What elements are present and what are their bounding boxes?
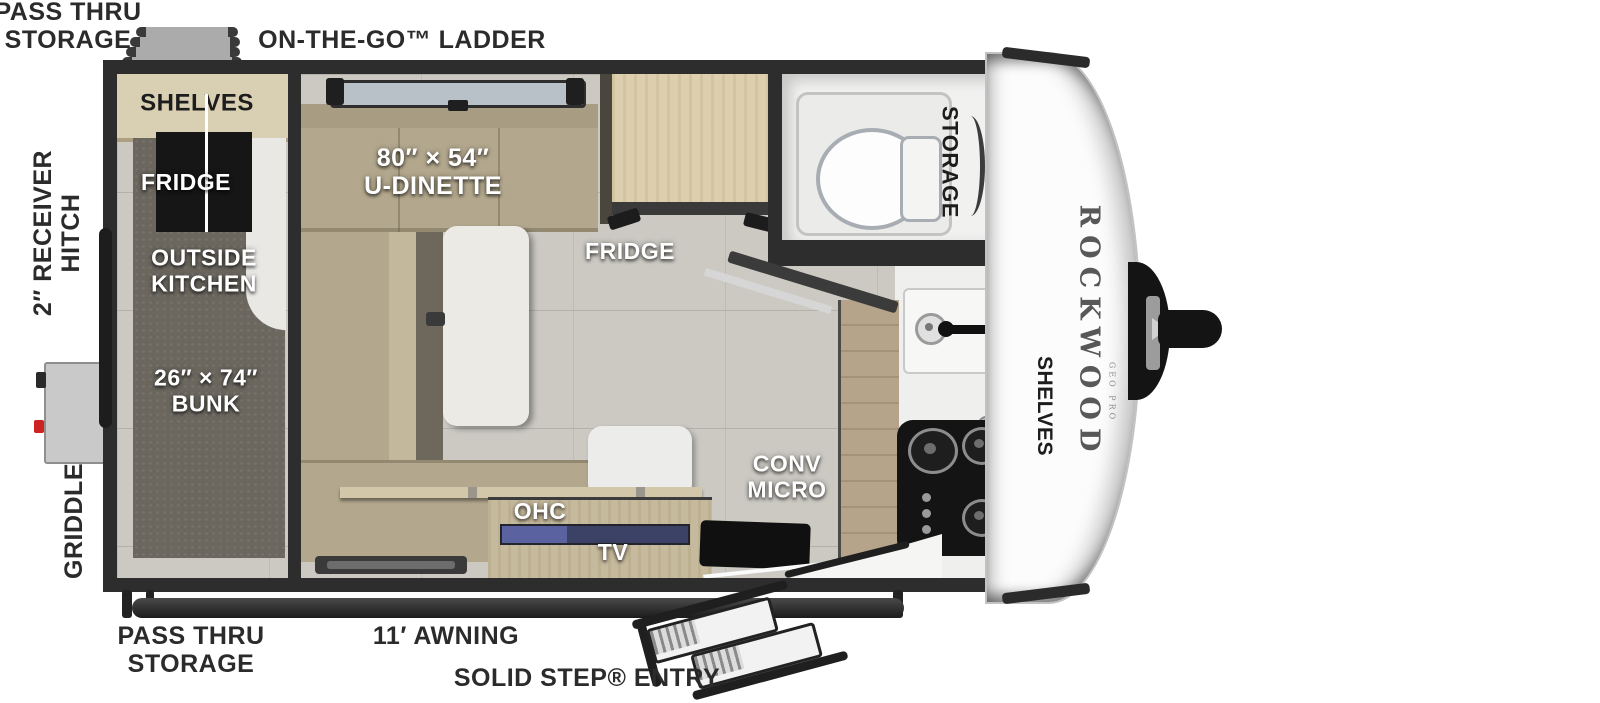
cap-shelves-label: SHELVES xyxy=(1032,356,1056,456)
u-dinette-label: 80″ × 54″ U-DINETTE xyxy=(364,144,502,200)
callout-line xyxy=(205,94,208,232)
outside-kitchen-bay xyxy=(246,138,286,330)
window-bracket-icon xyxy=(566,78,584,105)
conv-micro-label: CONV MICRO xyxy=(747,451,826,503)
griddle-latch-icon xyxy=(36,372,46,388)
floorplan-diagram: PASS THRU STORAGE ON-THE-GO™ LADDER 2″ R… xyxy=(0,0,1600,703)
awning-label: 11′ AWNING xyxy=(373,622,519,650)
front-cap xyxy=(985,52,1141,604)
tv-label: TV xyxy=(598,540,628,566)
pass-thru-storage-bottom-label: PASS THRU STORAGE xyxy=(117,622,264,678)
pass-thru-storage-top-label: PASS THRU STORAGE xyxy=(0,0,142,54)
toilet-tank-icon xyxy=(900,136,942,222)
ohc-label: OHC xyxy=(514,499,567,525)
ladder-label: ON-THE-GO™ LADDER xyxy=(258,26,546,54)
fridge-cabinet xyxy=(612,74,780,202)
bathroom-storage-label: STORAGE xyxy=(937,106,962,218)
cooktop-knob-icon xyxy=(922,525,931,534)
convection-microwave-icon xyxy=(699,520,811,570)
overhead-cabinet-gap xyxy=(468,487,477,498)
solid-step-entry-label: SOLID STEP® ENTRY xyxy=(454,664,720,692)
awning-bracket-icon xyxy=(122,590,132,618)
outside-kitchen-label: OUTSIDE KITCHEN xyxy=(151,245,257,297)
kitchen-cabinet-face xyxy=(838,300,899,560)
ladder-icon xyxy=(126,47,240,57)
side-window-icon xyxy=(327,561,455,569)
exterior-door-handle-icon xyxy=(99,228,112,428)
fridge-label: FRIDGE xyxy=(585,239,675,265)
burner-icon xyxy=(974,511,984,520)
burner-icon xyxy=(974,439,984,448)
sink-drain-icon xyxy=(925,323,933,331)
brand-model-logo: GEO PRO xyxy=(1108,362,1117,422)
griddle-label: GRIDDLE xyxy=(60,463,88,579)
cooktop-knob-icon xyxy=(922,493,931,502)
dinette-floor-shadow xyxy=(416,232,443,462)
ladder-icon xyxy=(130,37,240,47)
brand-logo: ROCKWOOD xyxy=(1074,205,1105,460)
bathroom-wall xyxy=(768,74,782,266)
trailer-bottom-wall xyxy=(103,578,1015,592)
faucet-icon xyxy=(938,321,954,337)
hitch-coupler-icon xyxy=(1158,310,1222,348)
window-latch-icon xyxy=(448,100,468,111)
cushion-seam xyxy=(301,460,590,463)
griddle-valve-icon xyxy=(34,420,44,433)
shelves-label: SHELVES xyxy=(140,91,254,118)
burner-icon xyxy=(924,443,936,454)
table-pedestal-icon xyxy=(426,312,445,326)
receiver-hitch-label: 2″ RECEIVER HITCH xyxy=(29,150,85,316)
cooktop-knob-icon xyxy=(922,509,931,518)
tv-screen-icon xyxy=(500,524,690,545)
dinette-table xyxy=(443,226,529,426)
bathroom-wall xyxy=(768,240,1002,266)
fridge-cabinet-side xyxy=(600,74,612,224)
outside-fridge-label: FRIDGE xyxy=(141,170,231,196)
ladder-icon xyxy=(136,27,238,37)
window-bracket-icon xyxy=(326,78,344,105)
bunk-wall xyxy=(288,74,301,578)
bunk-label: 26″ × 74″ BUNK xyxy=(154,365,258,417)
dinette-bench-edge xyxy=(389,232,416,462)
